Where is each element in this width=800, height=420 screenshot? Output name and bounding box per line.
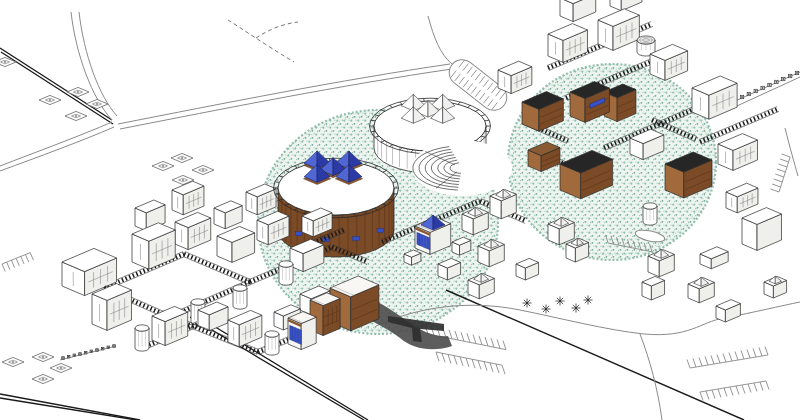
east-hall (726, 183, 758, 213)
tree-planter (192, 165, 214, 174)
campus-turret (265, 331, 279, 355)
tree-planter (39, 95, 61, 104)
amphitheater (412, 140, 512, 196)
tree-planter (65, 111, 87, 120)
campus-turret (233, 285, 247, 309)
campus-hall (228, 310, 262, 346)
plan-tree (556, 297, 565, 306)
tree-planter (50, 363, 72, 372)
plan-tree (584, 296, 593, 305)
tree-planter (86, 99, 108, 108)
dashed-road (228, 20, 294, 62)
masterplan-canvas (0, 0, 800, 420)
west-edge-parking-row (2, 253, 33, 272)
plan-tree (523, 299, 532, 308)
se-parking-row (700, 381, 769, 401)
north-loop-road (428, 16, 452, 64)
plan-tree (572, 304, 581, 313)
tree-planter (32, 352, 54, 361)
residence (764, 276, 787, 298)
tree-planter (0, 57, 16, 66)
east-edge-parking-row (771, 154, 791, 192)
se-hall (742, 208, 781, 251)
south-branch-road (640, 334, 662, 420)
east-edge-road (785, 128, 798, 176)
east-hall (718, 134, 757, 171)
tree-planter (2, 357, 24, 366)
north-hall (498, 61, 532, 93)
campus-turret (279, 261, 293, 285)
tree-planter (152, 161, 174, 170)
tree-planter (32, 374, 54, 383)
campus-turret (135, 325, 149, 351)
residence (516, 258, 539, 280)
west-south-road (0, 394, 140, 420)
campus-hall (172, 181, 204, 215)
south-rail-road (190, 314, 368, 420)
southeast-road (446, 290, 744, 420)
north-hall (598, 9, 639, 51)
campus-hall (175, 212, 211, 249)
tree-planter (171, 153, 193, 162)
campus-hall (214, 201, 242, 229)
glass-hall (288, 312, 316, 350)
west-bollard-row (62, 345, 116, 360)
north-hall (650, 44, 688, 80)
campus-hall (92, 284, 131, 331)
south-parking-row (436, 352, 505, 374)
residence (688, 277, 714, 303)
west-road (0, 122, 114, 171)
east-turret (643, 203, 657, 225)
tree-planter (67, 87, 89, 96)
rail-road-upper-left (0, 48, 113, 124)
dashed-branch (256, 22, 298, 38)
campus-hall (217, 226, 255, 262)
masterplan-drawing (0, 0, 800, 420)
east-hall (692, 76, 737, 119)
plan-tree (542, 305, 551, 314)
ne-tree-row (740, 71, 798, 98)
residence (642, 276, 665, 300)
residence (700, 247, 728, 269)
campus-hall (132, 223, 175, 269)
se-parking-row (687, 347, 768, 369)
north-hall (560, 0, 596, 22)
residence (716, 300, 740, 322)
